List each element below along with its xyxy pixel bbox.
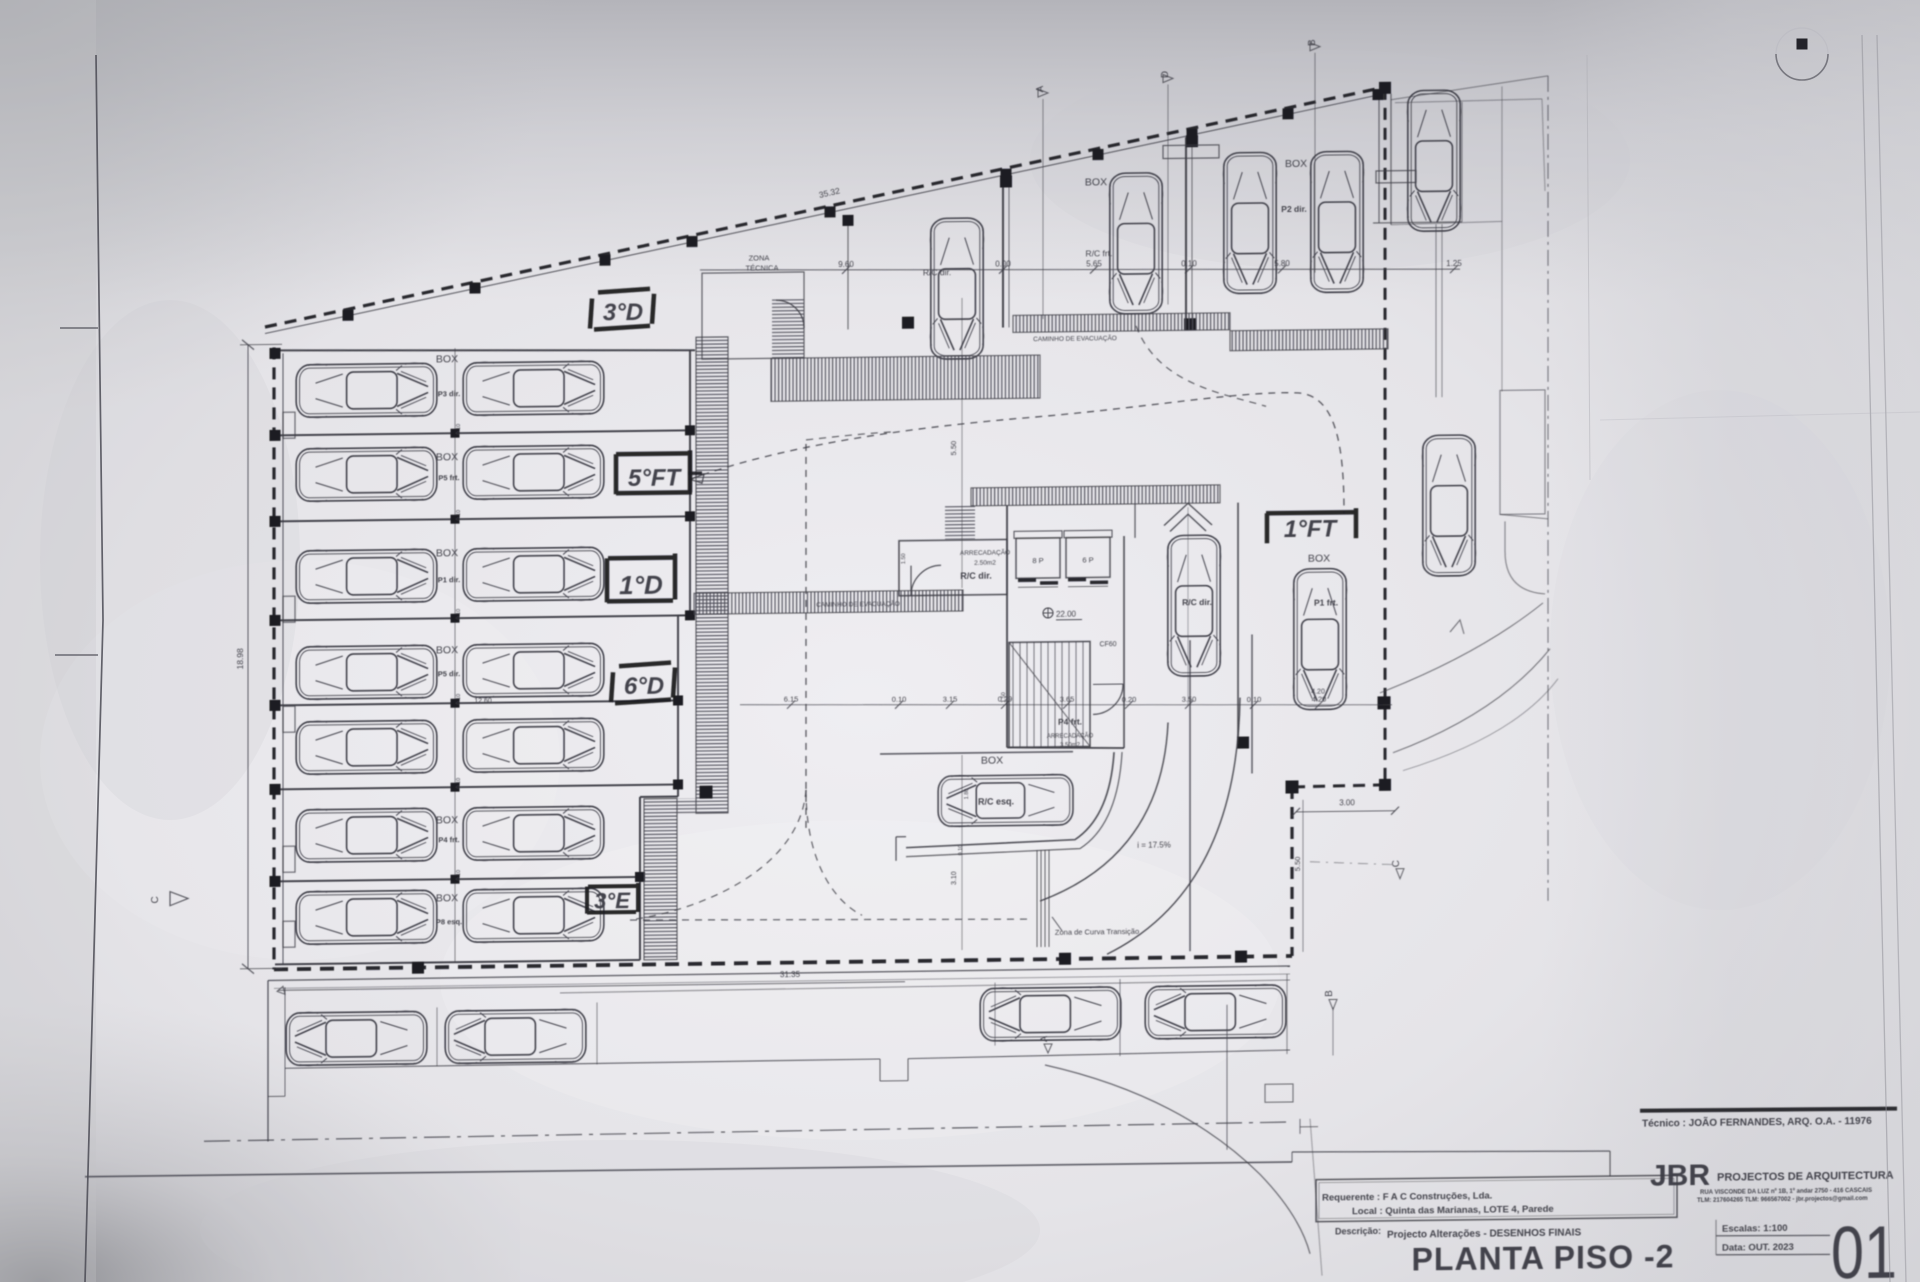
svg-text:5.65: 5.65 <box>1086 259 1102 268</box>
svg-text:0.10: 0.10 <box>1247 695 1262 704</box>
svg-text:R/C dir.: R/C dir. <box>960 571 992 581</box>
svg-text:BOX: BOX <box>436 644 458 656</box>
svg-text:9.60: 9.60 <box>838 260 854 269</box>
svg-text:BOX: BOX <box>436 547 458 559</box>
svg-text:R/C esq.: R/C esq. <box>978 796 1014 806</box>
svg-text:Escalas: 1:100: Escalas: 1:100 <box>1722 1223 1787 1235</box>
svg-text:Descrição:: Descrição: <box>1335 1226 1381 1237</box>
svg-text:12.60: 12.60 <box>474 698 492 705</box>
svg-text:C: C <box>1391 860 1402 867</box>
svg-text:1°D: 1°D <box>619 570 663 601</box>
svg-text:P5 dir.: P5 dir. <box>438 669 461 678</box>
svg-text:2.50m2: 2.50m2 <box>974 560 996 567</box>
svg-text:3.10: 3.10 <box>951 871 958 885</box>
svg-text:0.10: 0.10 <box>1181 259 1197 268</box>
svg-text:4.20: 4.20 <box>1312 695 1327 704</box>
svg-text:i = 17.5%: i = 17.5% <box>1137 840 1171 849</box>
svg-text:3°D: 3°D <box>603 299 643 326</box>
svg-text:5.50: 5.50 <box>1293 857 1302 872</box>
svg-text:ZONA: ZONA <box>749 253 770 262</box>
svg-text:1°FT: 1°FT <box>1284 515 1339 543</box>
svg-text:1.50: 1.50 <box>901 553 907 564</box>
svg-text:0.20: 0.20 <box>1122 695 1137 704</box>
svg-text:0.10: 0.10 <box>456 778 462 789</box>
svg-text:Zona de Curva Transição: Zona de Curva Transição <box>1055 927 1139 937</box>
svg-text:0.10: 0.10 <box>456 694 462 705</box>
svg-text:3.50: 3.50 <box>1182 695 1197 704</box>
svg-text:P3 dir.: P3 dir. <box>438 389 461 398</box>
svg-text:BOX: BOX <box>436 353 458 365</box>
svg-text:5°FT: 5°FT <box>628 464 683 492</box>
svg-text:BOX: BOX <box>436 892 458 904</box>
svg-text:BOX: BOX <box>436 451 458 463</box>
svg-text:P4 frt.: P4 frt. <box>1058 717 1082 727</box>
svg-text:18.98: 18.98 <box>235 648 245 670</box>
svg-text:0.10: 0.10 <box>456 870 462 881</box>
svg-text:0.10: 0.10 <box>892 695 907 704</box>
svg-text:BOX: BOX <box>1285 158 1307 170</box>
svg-text:6°D: 6°D <box>624 673 664 700</box>
svg-text:0.10: 0.10 <box>456 510 462 521</box>
svg-text:CF60: CF60 <box>1099 641 1116 648</box>
svg-text:1.80: 1.80 <box>964 789 970 800</box>
svg-text:P1 dir.: P1 dir. <box>438 575 461 584</box>
svg-text:6 P: 6 P <box>1082 555 1093 564</box>
svg-text:3.65: 3.65 <box>1060 695 1075 704</box>
svg-text:C: C <box>150 896 161 903</box>
svg-text:3.50m2: 3.50m2 <box>1060 743 1081 749</box>
svg-text:P1 frt.: P1 frt. <box>1314 597 1338 607</box>
svg-text:5.50: 5.50 <box>949 441 958 456</box>
svg-text:1.25: 1.25 <box>1446 259 1462 268</box>
svg-text:31.35: 31.35 <box>780 970 801 979</box>
svg-text:0.10: 0.10 <box>456 609 462 620</box>
svg-text:BOX: BOX <box>981 755 1003 767</box>
svg-text:BOX: BOX <box>1308 553 1330 565</box>
svg-text:3.00: 3.00 <box>1339 798 1355 807</box>
svg-text:01: 01 <box>1831 1211 1897 1282</box>
svg-text:P4 frt.: P4 frt. <box>438 835 459 844</box>
svg-text:0.29: 0.29 <box>998 695 1013 704</box>
svg-text:Data: OUT. 2023: Data: OUT. 2023 <box>1722 1242 1794 1254</box>
svg-text:P2 dir.: P2 dir. <box>1281 204 1307 214</box>
svg-text:B: B <box>1324 990 1335 997</box>
svg-text:BOX: BOX <box>436 814 458 826</box>
svg-text:8 P: 8 P <box>1032 556 1043 565</box>
svg-text:0.10: 0.10 <box>958 845 964 856</box>
svg-text:3°E: 3°E <box>594 888 631 913</box>
svg-text:P8 esq.: P8 esq. <box>436 917 462 926</box>
svg-text:PROJECTOS DE ARQUITECTURA: PROJECTOS DE ARQUITECTURA <box>1717 1170 1894 1184</box>
svg-text:ARRECADAÇÃO: ARRECADAÇÃO <box>1047 732 1094 740</box>
svg-text:0.10: 0.10 <box>456 424 462 435</box>
svg-text:3.15: 3.15 <box>943 695 958 704</box>
svg-text:6.15: 6.15 <box>784 695 799 704</box>
svg-text:BOX: BOX <box>1085 176 1107 188</box>
svg-text:PLANTA PISO -2: PLANTA PISO -2 <box>1412 1238 1675 1277</box>
svg-text:R/C frt.: R/C frt. <box>1086 248 1113 258</box>
svg-text:R/C dir.: R/C dir. <box>1182 597 1212 607</box>
svg-text:P5 frt.: P5 frt. <box>438 473 459 482</box>
svg-text:A: A <box>1039 1036 1049 1042</box>
svg-text:22.00: 22.00 <box>1056 610 1077 619</box>
svg-text:TÉCNICA: TÉCNICA <box>746 263 779 272</box>
svg-text:Requerente : F A C Construçõe: Requerente : F A C Construções, Lda. <box>1322 1191 1492 1204</box>
